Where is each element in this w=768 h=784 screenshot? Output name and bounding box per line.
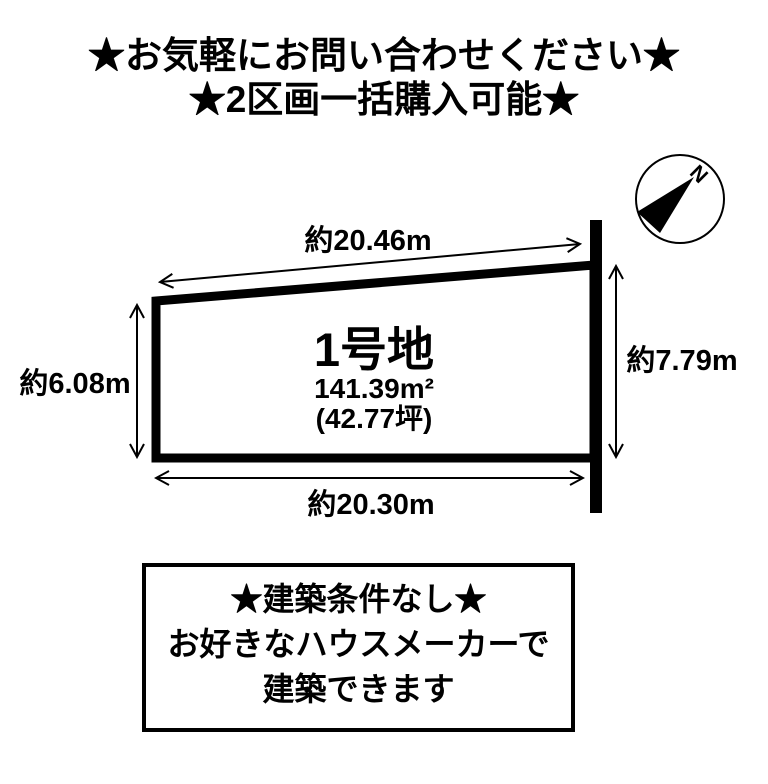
notice-line-3: 建築できます — [146, 667, 571, 712]
land-plot-flyer: ★お気軽にお問い合わせください★ ★2区画一括購入可能★ 約20.46m 約6.… — [0, 0, 768, 784]
road-boundary-line — [590, 220, 602, 513]
left-dimension-label: 約6.08m — [19, 366, 130, 400]
notice-line-1: ★建築条件なし★ — [146, 577, 571, 622]
compass-north-icon: N — [636, 155, 724, 243]
top-dimension-label: 約20.46m — [304, 223, 431, 257]
right-dimension-label: 約7.79m — [626, 343, 737, 377]
bottom-dimension-label: 約20.30m — [307, 487, 434, 521]
plot-area-tsubo-label: (42.77坪) — [316, 403, 433, 434]
notice-box: ★建築条件なし★ お好きなハウスメーカーで 建築できます — [142, 563, 575, 732]
notice-line-2: お好きなハウスメーカーで — [146, 622, 571, 667]
plot-area-sqm-label: 141.39m² — [314, 373, 434, 404]
plot-name-label: 1号地 — [314, 323, 434, 376]
